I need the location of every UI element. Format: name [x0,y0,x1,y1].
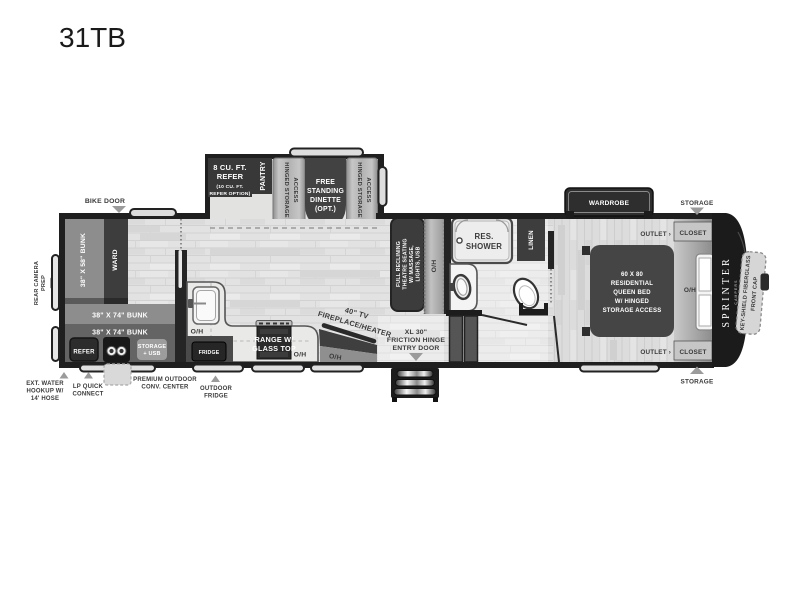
svg-text:RESIDENTIAL: RESIDENTIAL [611,281,653,287]
svg-text:WARDROBE: WARDROBE [589,200,630,207]
svg-text:FRIDGE: FRIDGE [204,394,228,400]
svg-text:14' HOSE: 14' HOSE [31,396,59,402]
svg-text:SHOWER: SHOWER [466,242,502,251]
svg-text:STORAGE ACCESS: STORAGE ACCESS [603,308,662,314]
svg-text:RANGE W/: RANGE W/ [255,335,294,344]
svg-text:W/ MASSAGE,: W/ MASSAGE, [409,245,415,283]
svg-text:38" X 58" BUNK: 38" X 58" BUNK [80,233,87,287]
svg-text:FRIDGE: FRIDGE [199,350,220,356]
svg-text:BIKE DOOR: BIKE DOOR [85,198,125,205]
svg-text:O/H: O/H [191,329,204,336]
svg-text:EXT. WATER: EXT. WATER [26,381,64,387]
svg-text:STORAGE: STORAGE [681,200,714,207]
svg-text:XL 30": XL 30" [405,329,427,336]
svg-text:WARD: WARD [112,249,119,271]
svg-text:31TB: 31TB [59,22,126,53]
svg-text:HINGED STORAGE: HINGED STORAGE [356,162,362,218]
svg-text:CAMPERS: CAMPERS [734,279,738,304]
svg-text:CLOSET: CLOSET [679,230,706,237]
svg-text:LP QUICK: LP QUICK [73,384,104,390]
svg-text:CONV. CENTER: CONV. CENTER [141,385,189,391]
svg-text:PREP: PREP [41,275,47,291]
svg-text:38" X 74" BUNK: 38" X 74" BUNK [92,330,148,337]
svg-text:REFER: REFER [73,350,95,356]
svg-text:(OPT.): (OPT.) [315,206,336,213]
svg-text:STORAGE: STORAGE [138,344,167,350]
svg-text:PREMIUM OUTDOOR: PREMIUM OUTDOOR [133,377,197,383]
svg-text:LIGHTS, USB: LIGHTS, USB [416,246,422,281]
svg-text:STORAGE: STORAGE [681,379,714,386]
svg-text:PANTRY: PANTRY [260,161,267,190]
svg-text:HOOKUP W/: HOOKUP W/ [26,389,63,395]
svg-text:FREE: FREE [316,179,335,186]
svg-text:HINGED STORAGE: HINGED STORAGE [283,162,289,218]
svg-text:O/H: O/H [294,352,307,359]
svg-text:CONNECT: CONNECT [72,392,103,398]
svg-text:DINETTE: DINETTE [310,197,341,204]
svg-text:W/ HINGED: W/ HINGED [615,299,650,305]
svg-text:ENTRY DOOR: ENTRY DOOR [393,345,440,352]
svg-text:SPRINTER: SPRINTER [721,256,732,327]
svg-text:FULL RECLINING: FULL RECLINING [396,241,402,287]
svg-text:OUTLET ›: OUTLET › [640,349,671,356]
svg-text:CLOSET: CLOSET [679,349,706,356]
svg-text:60 X 80: 60 X 80 [621,272,644,278]
svg-text:REFER OPTION): REFER OPTION) [210,191,251,197]
svg-text:LINEN: LINEN [528,230,535,250]
svg-text:RES.: RES. [475,232,494,241]
svg-text:OUTDOOR: OUTDOOR [200,386,233,392]
svg-text:QUEEN BED: QUEEN BED [613,290,651,296]
svg-text:+ USB: + USB [143,351,160,357]
svg-text:REFER: REFER [217,172,244,181]
svg-text:THEATRE SEATING: THEATRE SEATING [403,238,409,289]
svg-text:REAR CAMERA: REAR CAMERA [34,261,40,305]
svg-text:ACCESS: ACCESS [365,177,371,202]
svg-text:O/H: O/H [684,287,696,294]
svg-text:FRICTION HINGE: FRICTION HINGE [387,337,446,344]
svg-text:STANDING: STANDING [307,188,344,195]
svg-text:ACCESS: ACCESS [292,177,298,202]
svg-text:GLASS TOP: GLASS TOP [252,344,296,353]
svg-text:OUTLET ›: OUTLET › [640,231,671,238]
svg-text:8 CU. FT.: 8 CU. FT. [213,163,246,172]
svg-text:38" X 74" BUNK: 38" X 74" BUNK [92,313,148,320]
svg-text:O/H: O/H [431,260,438,273]
svg-text:(10 CU. FT.: (10 CU. FT. [216,184,244,190]
